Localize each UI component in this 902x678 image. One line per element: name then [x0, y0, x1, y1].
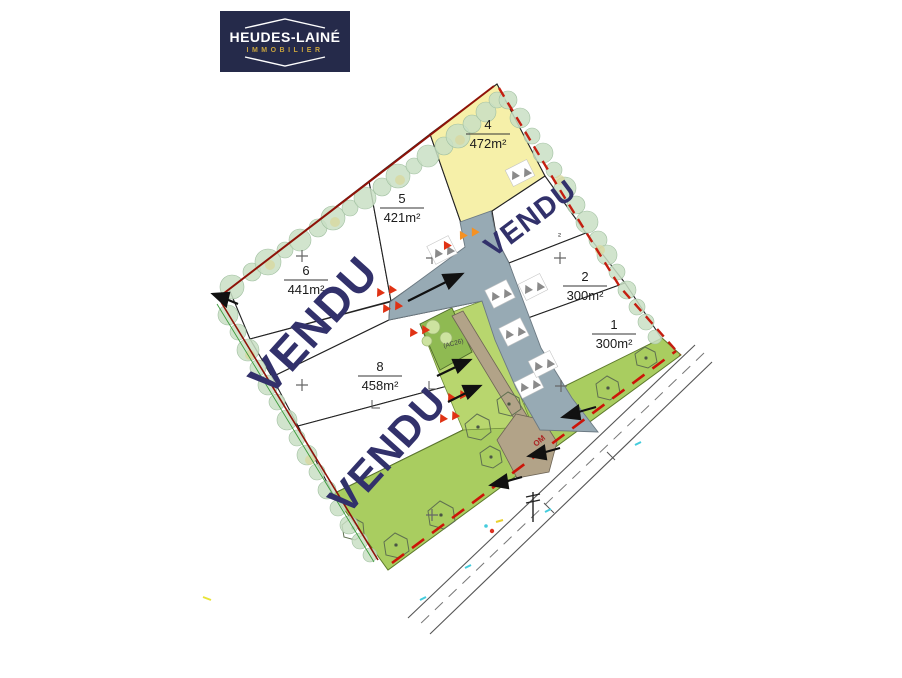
svg-text:458m²: 458m²	[362, 378, 400, 393]
svg-text:421m²: 421m²	[384, 210, 422, 225]
svg-text:6: 6	[302, 263, 309, 278]
agency-logo: HEUDES-LAINÉ IMMOBILIER	[220, 11, 350, 72]
svg-text:8: 8	[376, 359, 383, 374]
svg-text:300m²: 300m²	[567, 288, 605, 303]
svg-text:5: 5	[398, 191, 405, 206]
logo-title: HEUDES-LAINÉ	[229, 30, 340, 44]
screenshot-root: { "logo": { "title": "HEUDES-LAINÉ", "su…	[0, 0, 902, 678]
logo-subtitle: IMMOBILIER	[247, 47, 324, 54]
svg-text:300m²: 300m²	[596, 336, 634, 351]
svg-text:²: ²	[558, 231, 561, 241]
logo-chevron-up-icon	[237, 17, 333, 29]
svg-text:2: 2	[581, 269, 588, 284]
logo-chevron-down-icon	[237, 55, 333, 67]
svg-text:1: 1	[610, 317, 617, 332]
utility-pole-icon	[526, 492, 540, 522]
svg-text:4: 4	[484, 117, 491, 132]
site-plan: 6 441m² 5 421m² 4 472m² 2 300m² 1 300m² …	[0, 0, 902, 678]
svg-text:472m²: 472m²	[470, 136, 508, 151]
